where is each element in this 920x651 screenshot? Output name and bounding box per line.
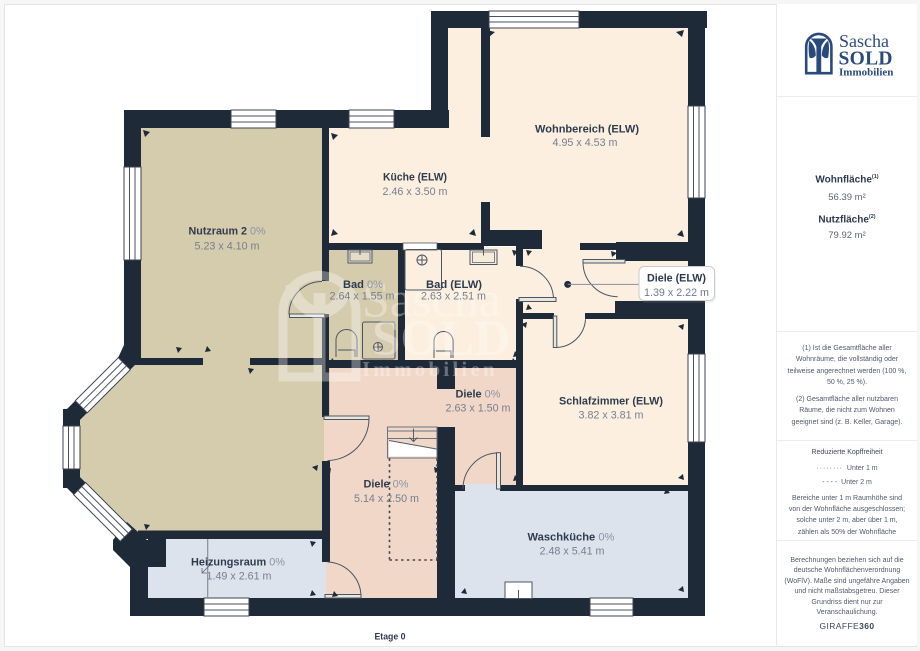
svg-text:Bad (ELW): Bad (ELW) xyxy=(426,279,482,291)
svg-text:Immobilien: Immobilien xyxy=(362,357,498,381)
svg-text:Diele 0%: Diele 0% xyxy=(364,479,409,491)
svg-text:3.82 x 3.81 m: 3.82 x 3.81 m xyxy=(579,410,644,422)
svg-text:Küche (ELW): Küche (ELW) xyxy=(383,172,447,184)
svg-text:Waschküche 0%: Waschküche 0% xyxy=(528,532,615,544)
svg-text:Heizungsraum 0%: Heizungsraum 0% xyxy=(191,557,285,569)
svg-text:2.48 x 5.41 m: 2.48 x 5.41 m xyxy=(540,546,605,558)
svg-text:Wohnbereich (ELW): Wohnbereich (ELW) xyxy=(535,124,639,136)
svg-text:1.39 x 2.22 m: 1.39 x 2.22 m xyxy=(644,287,709,299)
svg-text:5.14 x 2.50 m: 5.14 x 2.50 m xyxy=(354,493,419,505)
svg-text:Bad 0%: Bad 0% xyxy=(343,279,383,291)
svg-text:Diele 0%: Diele 0% xyxy=(456,389,501,401)
svg-text:Etage 0: Etage 0 xyxy=(375,632,406,643)
svg-text:Schlafzimmer (ELW): Schlafzimmer (ELW) xyxy=(559,396,663,408)
svg-text:5.23 x 4.10 m: 5.23 x 4.10 m xyxy=(195,241,260,253)
svg-text:4.95 x 4.53 m: 4.95 x 4.53 m xyxy=(553,137,618,149)
svg-text:Diele (ELW): Diele (ELW) xyxy=(647,273,706,285)
svg-text:Immobilien: Immobilien xyxy=(839,67,893,77)
svg-text:2.46 x 3.50 m: 2.46 x 3.50 m xyxy=(383,186,448,198)
svg-text:1.49 x 2.61 m: 1.49 x 2.61 m xyxy=(207,571,272,583)
svg-text:Nutzraum 2 0%: Nutzraum 2 0% xyxy=(189,226,266,238)
svg-text:2.63 x 1.50 m: 2.63 x 1.50 m xyxy=(446,403,511,415)
svg-text:2.64 x 1.55 m: 2.64 x 1.55 m xyxy=(330,291,395,303)
svg-text:2.63 x 2.51 m: 2.63 x 2.51 m xyxy=(421,291,486,303)
